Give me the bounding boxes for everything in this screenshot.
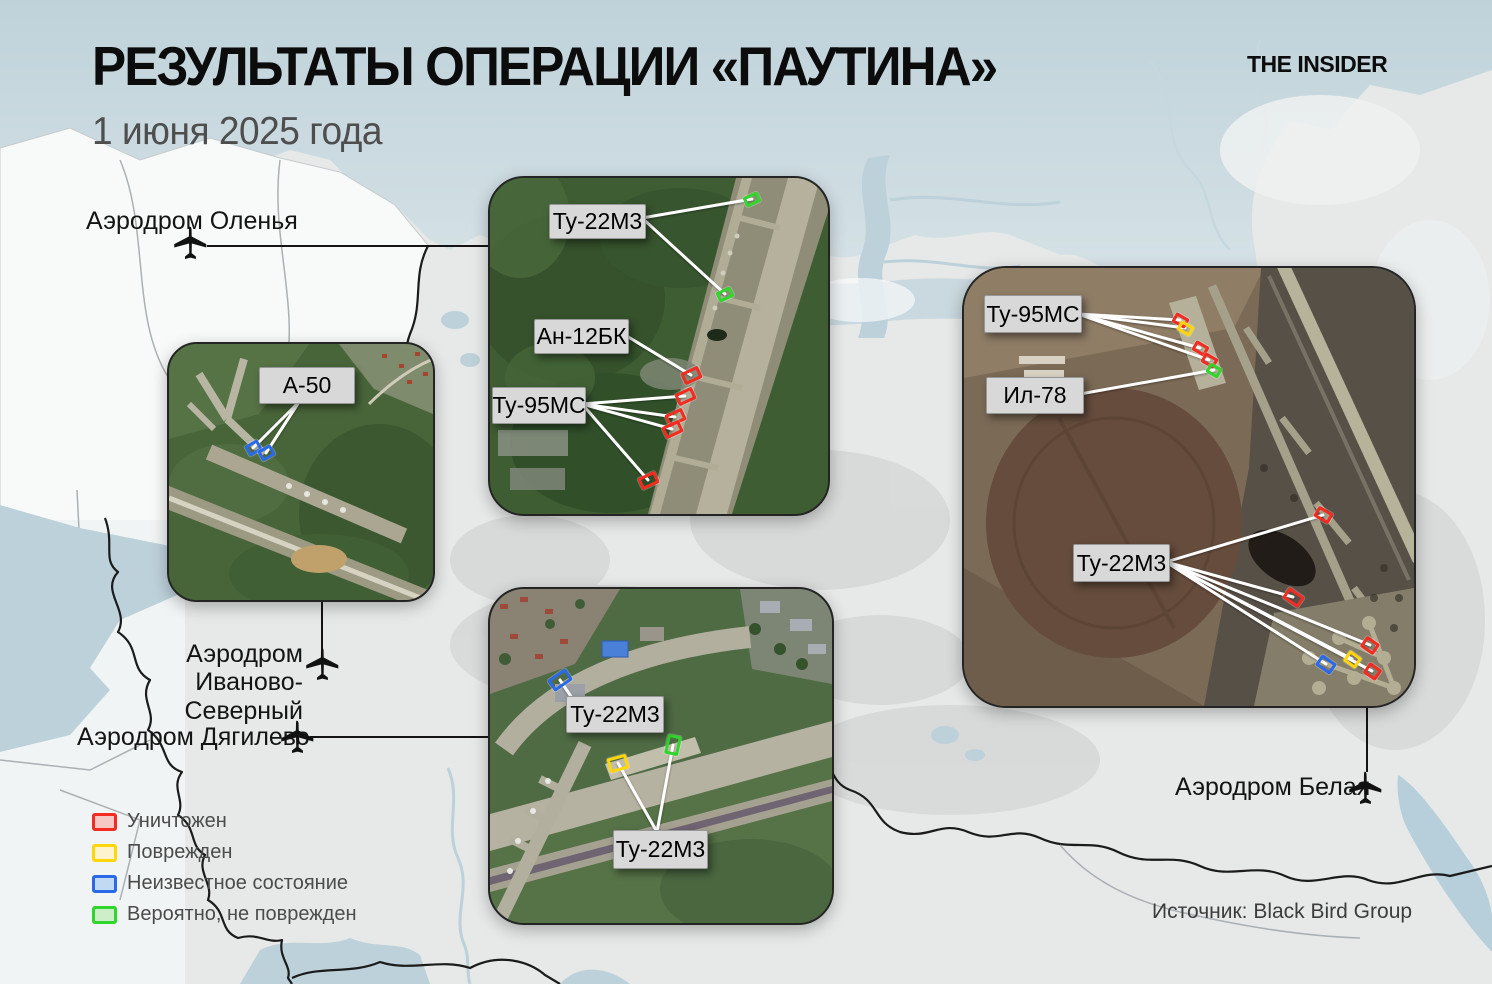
airfield-label-dyagilevo: Аэродром Дягилево (77, 723, 310, 752)
legend-item-damaged: Поврежден (92, 843, 357, 862)
aircraft-callout: Ан-12БК (534, 319, 629, 354)
airplane-icon (1347, 769, 1383, 807)
the-insider-logo: THE INSIDER (1247, 51, 1387, 78)
aircraft-callout: А-50 (259, 367, 355, 404)
satellite-inset-dyagilevo: Ту-22М3 Ту-22М3 (488, 587, 834, 925)
legend-item-undamaged: Вероятно, не поврежден (92, 905, 357, 924)
airplane-icon (172, 224, 208, 262)
leader-lines (490, 589, 832, 923)
airfield-label-belaya: Аэродром Белая (1175, 773, 1370, 802)
unknown-swatch (92, 875, 117, 893)
airfield-label-ivanovo: Аэродром Иваново-Северный (88, 640, 303, 725)
aircraft-callout: Ил-78 (986, 377, 1084, 414)
aircraft-callout: Ту-22М3 (549, 204, 646, 239)
satellite-inset-ivanovo: А-50 (167, 342, 435, 602)
aircraft-callout: Ту-22М3 (566, 696, 664, 733)
page-title: РЕЗУЛЬТАТЫ ОПЕРАЦИИ «ПАУТИНА» (92, 34, 996, 98)
airplane-icon (304, 645, 340, 683)
legend-label: Вероятно, не поврежден (127, 903, 357, 926)
destroyed-swatch (92, 813, 117, 831)
header: РЕЗУЛЬТАТЫ ОПЕРАЦИИ «ПАУТИНА» 1 июня 202… (92, 34, 1064, 154)
undamaged-swatch (92, 906, 117, 924)
aircraft-callout: Ту-95МС (492, 387, 586, 424)
legend-label: Неизвестное состояние (127, 872, 348, 895)
aircraft-callout: Ту-95МС (984, 295, 1082, 333)
damaged-swatch (92, 844, 117, 862)
satellite-inset-olenya: Ту-22М3 Ан-12БК Ту-95МС (488, 176, 830, 516)
satellite-inset-belaya: Ту-95МС Ил-78 Ту-22М3 (962, 266, 1416, 708)
date-subtitle: 1 июня 2025 года (92, 110, 1016, 154)
infographic-root: РЕЗУЛЬТАТЫ ОПЕРАЦИИ «ПАУТИНА» 1 июня 202… (0, 0, 1492, 984)
aircraft-callout: Ту-22М3 (1073, 544, 1170, 582)
status-legend: Уничтожен Поврежден Неизвестное состояни… (92, 812, 357, 936)
airplane-icon (279, 718, 315, 756)
legend-item-destroyed: Уничтожен (92, 812, 357, 831)
legend-label: Уничтожен (127, 810, 227, 833)
legend-label: Поврежден (127, 841, 232, 864)
aircraft-callout: Ту-22М3 (613, 830, 708, 869)
source-note: Источник: Black Bird Group (1152, 900, 1412, 924)
legend-item-unknown: Неизвестное состояние (92, 874, 357, 893)
